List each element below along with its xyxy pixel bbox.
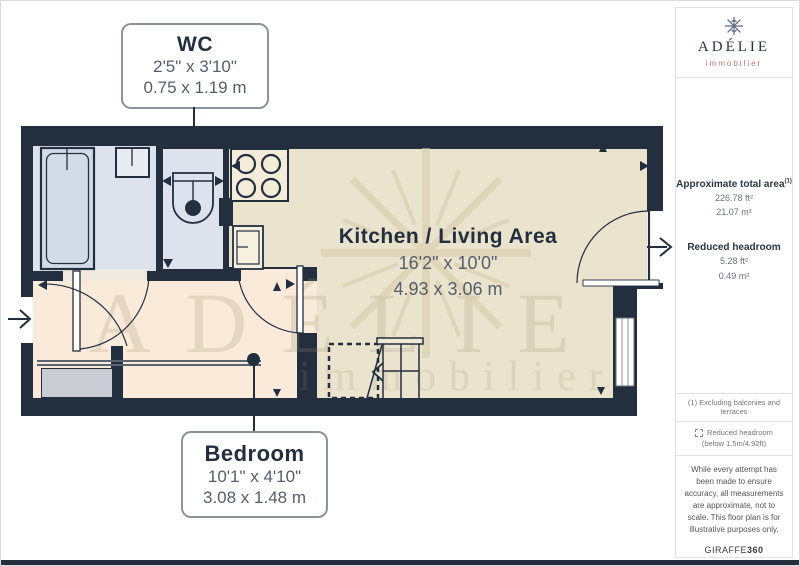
total-area-m: 21.07 m²: [676, 205, 792, 219]
snowflake-logo-icon: [724, 16, 744, 36]
total-area-label: Approximate total area(1): [676, 178, 792, 191]
entry-arrow-left: [8, 310, 30, 328]
kitchen-label-title: Kitchen / Living Area: [318, 225, 578, 249]
giraffe360-brand: GIRAFFE360: [683, 544, 785, 558]
stove-icon: [231, 149, 288, 201]
outside-area: [637, 289, 663, 416]
reduced-headroom-area: [329, 344, 378, 398]
brand-name: ADÉLIE: [698, 39, 770, 56]
disclaimer-block: While every attempt has been made to ens…: [676, 456, 792, 558]
kitchen-label-dims-ft: 16'2" x 10'0": [318, 252, 578, 275]
window: [616, 318, 634, 386]
bedroom-label-dims-ft: 10'1" x 4'10": [208, 467, 301, 488]
area-summary: Approximate total area(1) 226.78 ft² 21.…: [676, 78, 792, 394]
headroom-legend: Reduced headroom (below 1.5m/4.92ft): [676, 422, 792, 456]
kitchen-label: Kitchen / Living Area 16'2" x 10'0" 4.93…: [318, 225, 578, 300]
wc-label-title: WC: [177, 33, 213, 57]
info-sidebar: ADÉLIE immobilier Approximate total area…: [675, 7, 793, 558]
wc-label: WC 2'5" x 3'10" 0.75 x 1.19 m: [121, 23, 269, 109]
bedroom-label-title: Bedroom: [204, 441, 304, 467]
legend-sub: (below 1.5m/4.92ft): [702, 438, 766, 449]
wc-label-connector: [193, 107, 195, 129]
headroom-ft: 5.28 ft²: [676, 254, 792, 268]
door-entrance-hall: [41, 284, 127, 346]
dashed-square-icon: [695, 429, 703, 437]
total-area-ft: 226.78 ft²: [676, 191, 792, 205]
brand-tagline: immobilier: [706, 59, 762, 68]
floorplan-page: ADÉLIE immobilier: [0, 0, 800, 566]
kitchen-label-dims-m: 4.93 x 3.06 m: [318, 278, 578, 301]
logo-block: ADÉLIE immobilier: [676, 8, 792, 78]
headroom-label: Reduced headroom: [676, 241, 792, 254]
wc-label-dims-m: 0.75 x 1.19 m: [143, 78, 246, 99]
bedroom-label-connector: [253, 365, 255, 431]
stairs-icon: [367, 338, 423, 398]
door-bathroom: [73, 271, 149, 351]
sink-icon: [116, 148, 149, 177]
legend-label: Reduced headroom: [707, 427, 773, 438]
footnote: (1) Excluding balconies and terraces: [676, 394, 792, 422]
bedroom-label: Bedroom 10'1" x 4'10" 3.08 x 1.48 m: [181, 431, 328, 518]
headroom-m: 0.49 m²: [676, 269, 792, 283]
door-hall-kitchen: [238, 266, 303, 333]
disclaimer-text: While every attempt has been made to ens…: [683, 464, 785, 536]
kitchen-sink-icon: [233, 226, 263, 269]
door-main-right: [577, 211, 659, 286]
bathtub-icon: [41, 148, 94, 269]
bottom-accent-bar: [1, 560, 800, 566]
wc-label-dims-ft: 2'5" x 3'10": [153, 57, 237, 78]
bedroom-label-dims-m: 3.08 x 1.48 m: [203, 488, 306, 509]
toilet-icon: [173, 173, 213, 223]
